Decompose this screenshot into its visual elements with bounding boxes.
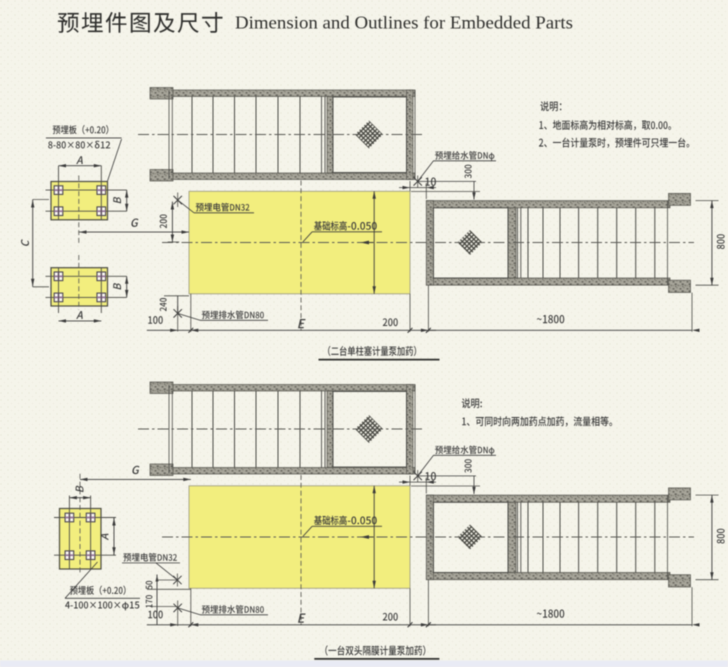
svg-text:Dimension and Outlines for Emb: Dimension and Outlines for Embedded Part… <box>235 13 573 33</box>
